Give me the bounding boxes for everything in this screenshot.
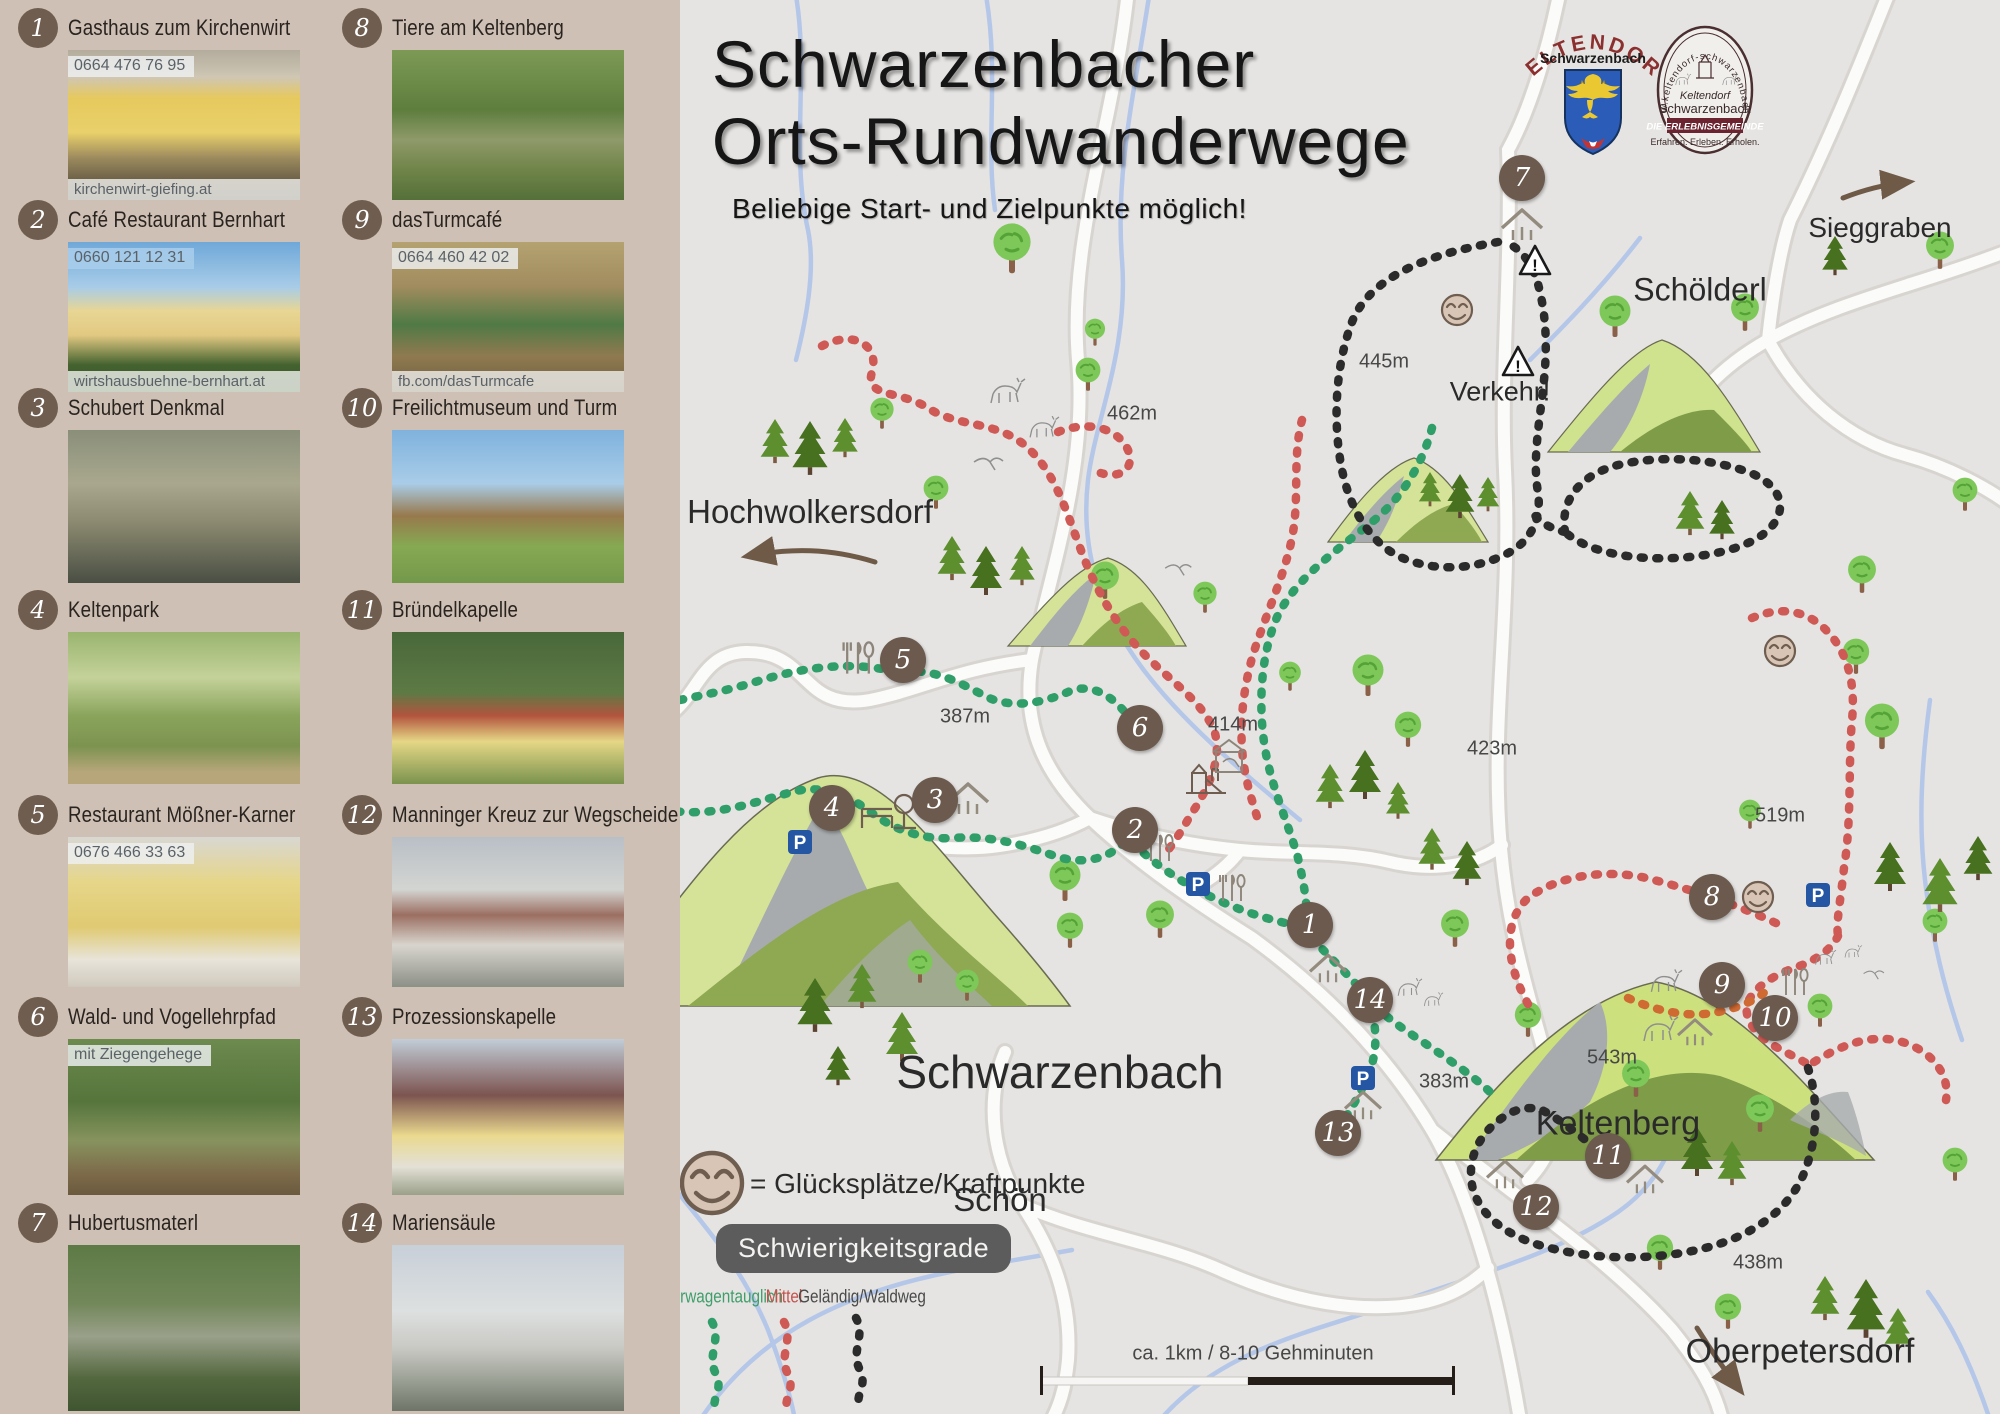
poi-number: 8	[342, 8, 382, 48]
poi-item-7: 7Hubertusmaterl	[18, 1203, 318, 1411]
map-title-line2: Orts-Rundwanderwege	[712, 103, 1410, 180]
smiley-icon	[1765, 636, 1795, 666]
poi-title: Gasthaus zum Kirchenwirt	[68, 15, 290, 41]
poi-number: 9	[342, 200, 382, 240]
poi-item-4: 4Keltenpark	[18, 590, 318, 784]
poi-photo-prozessionskapelle	[392, 1039, 624, 1195]
map-marker-6: 6	[1117, 705, 1163, 751]
poi-number: 3	[18, 388, 58, 428]
poi-number: 2	[18, 200, 58, 240]
poi-number: 1	[18, 8, 58, 48]
poi-phone: 0664 476 76 95	[68, 56, 194, 77]
map-marker-1: 1	[1287, 902, 1333, 948]
map-marker-11: 11	[1585, 1133, 1631, 1179]
poi-title: Freilichtmuseum und Turm	[392, 395, 617, 421]
map-marker-9: 9	[1699, 962, 1745, 1008]
poi-number: 7	[18, 1203, 58, 1243]
legend-difficulty-title: Schwierigkeitsgrade	[716, 1224, 1011, 1273]
poi-item-12: 12Manninger Kreuz zur Wegscheide	[342, 795, 672, 987]
poi-sidebar: 1Gasthaus zum Kirchenwirt 0664 476 76 95…	[0, 0, 680, 1414]
stamp-tagline: Erfahren. Erleben. Erholen.	[1650, 137, 1759, 147]
poi-item-9: 9dasTurmcafé 0664 460 42 02fb.com/dasTur…	[342, 200, 672, 392]
elevation-label: 445m	[1359, 351, 1409, 374]
poi-photo-gasthaus-kirchenwirt: 0664 476 76 95kirchenwirt-giefing.at	[68, 50, 300, 200]
elevation-label: 383m	[1419, 1071, 1469, 1094]
poi-title: Tiere am Keltenberg	[392, 15, 564, 41]
poi-title: Manninger Kreuz zur Wegscheide	[392, 802, 678, 828]
poi-title: dasTurmcafé	[392, 207, 502, 233]
poi-photo-tiere-keltenberg	[392, 50, 624, 200]
animal-sketch	[1845, 945, 1862, 958]
place-label-oberpetersdorf: Oberpetersdorf	[1686, 1333, 1915, 1372]
place-label-sieggraben: Sieggraben	[1808, 212, 1951, 244]
place-label-schoelderl: Schölderl	[1633, 272, 1766, 309]
poi-item-14: 14Mariensäule	[342, 1203, 672, 1411]
map-marker-14: 14	[1347, 977, 1393, 1023]
poi-photo-mariensaeule	[392, 1245, 624, 1411]
poi-title: Mariensäule	[392, 1210, 496, 1236]
smiley-icon	[1442, 295, 1472, 325]
bird-sketch	[974, 458, 1003, 470]
scale-label: ca. 1km / 8-10 Gehminuten	[1132, 1343, 1373, 1366]
poi-item-8: 8Tiere am Keltenberg	[342, 8, 672, 200]
map-marker-12: 12	[1513, 1184, 1559, 1230]
map-title-line1: Schwarzenbacher	[712, 26, 1410, 103]
bird-sketch	[1864, 971, 1884, 979]
elevation-label: 462m	[1107, 403, 1157, 426]
poi-item-10: 10Freilichtmuseum und Turm	[342, 388, 672, 583]
wanderkarte-poster: P !	[0, 0, 2000, 1414]
traffic-warning-label: Verkehr!	[1450, 377, 1551, 408]
playground-icon	[1186, 765, 1226, 793]
poi-item-1: 1Gasthaus zum Kirchenwirt 0664 476 76 95…	[18, 8, 318, 200]
poi-title: Prozessionskapelle	[392, 1004, 556, 1030]
poi-phone: 0664 460 42 02	[392, 248, 518, 269]
poi-title: Schubert Denkmal	[68, 395, 225, 421]
restaurant-icon	[1220, 875, 1245, 901]
poi-item-2: 2Café Restaurant Bernhart 0660 121 12 31…	[18, 200, 318, 392]
legend-smiley-label: = Glücksplätze/Kraftpunkte	[750, 1168, 1085, 1200]
poi-photo-manninger-kreuz	[392, 837, 624, 987]
poi-number: 10	[342, 388, 382, 428]
poi-number: 6	[18, 997, 58, 1037]
poi-phone: 0676 466 33 63	[68, 843, 194, 864]
poi-photo-schubert-denkmal	[68, 430, 300, 583]
poi-item-11: 11Bründelkapelle	[342, 590, 672, 784]
parking-icon	[1806, 883, 1830, 907]
poi-number: 14	[342, 1203, 382, 1243]
poi-caption: mit Ziegengehege	[68, 1045, 211, 1066]
poi-photo-bruendelkapelle	[392, 632, 624, 784]
poi-number: 4	[18, 590, 58, 630]
poi-number: 5	[18, 795, 58, 835]
poi-photo-hubertusmaterl	[68, 1245, 300, 1411]
animal-sketch	[1398, 978, 1422, 996]
parking-icon	[788, 830, 812, 854]
arrow-hochwolkersdorf	[748, 551, 875, 562]
map-marker-13: 13	[1315, 1110, 1361, 1156]
map-marker-8: 8	[1689, 874, 1735, 920]
elevation-label: 519m	[1755, 805, 1805, 828]
smiley-icon	[1743, 882, 1773, 912]
place-label-schwarzenbach: Schwarzenbach	[896, 1045, 1223, 1099]
animal-sketch	[1424, 992, 1443, 1006]
legend-level-hard: Geländig/Waldweg	[798, 1287, 926, 1308]
bird-sketch	[1165, 565, 1191, 576]
poi-title: Wald- und Vogellehrpfad	[68, 1004, 276, 1030]
map-marker-4: 4	[809, 785, 855, 831]
elevation-label: 387m	[940, 706, 990, 729]
poi-title: Keltenpark	[68, 597, 159, 623]
restaurant-icon	[1783, 969, 1808, 995]
poi-photo-vogellehrpfad: mit Ziegengehege	[68, 1039, 300, 1195]
parking-icon	[1186, 872, 1210, 896]
elevation-label: 438m	[1733, 1252, 1783, 1275]
map-subtitle: Beliebige Start- und Zielpunkte möglich!	[732, 193, 1410, 225]
map-marker-5: 5	[880, 637, 926, 683]
poi-photo-cafe-bernhart: 0660 121 12 31wirtshausbuehne-bernhart.a…	[68, 242, 300, 392]
poi-photo-freilichtmuseum	[392, 430, 624, 583]
poi-number: 12	[342, 795, 382, 835]
poi-url: kirchenwirt-giefing.at	[68, 179, 300, 200]
poi-phone: 0660 121 12 31	[68, 248, 194, 269]
legend-red-footprints	[784, 1322, 791, 1410]
poi-photo-turmcafe: 0664 460 42 02fb.com/dasTurmcafe	[392, 242, 624, 392]
poi-number: 11	[342, 590, 382, 630]
poi-title: Restaurant Mößner-Karner	[68, 802, 296, 828]
parking-icon	[1351, 1066, 1375, 1090]
map-marker-7: 7	[1499, 155, 1545, 201]
poi-item-5: 5Restaurant Mößner-Karner 0676 466 33 63	[18, 795, 318, 987]
place-label-hochwolkersdorf: Hochwolkersdorf	[687, 493, 933, 531]
scale-bar	[1040, 1366, 1455, 1395]
restaurant-icon	[844, 642, 874, 673]
coat-logo-sub: Schwarzenbach	[1540, 50, 1646, 66]
poi-title: Hubertusmaterl	[68, 1210, 198, 1236]
poi-photo-keltenpark	[68, 632, 300, 784]
stamp-line2: Schwarzenbach	[1659, 101, 1752, 116]
poi-item-3: 3Schubert Denkmal	[18, 388, 318, 583]
poi-item-13: 13Prozessionskapelle	[342, 997, 672, 1195]
legend-black-footprints	[856, 1318, 863, 1406]
legend-smiley-icon	[682, 1153, 742, 1213]
elevation-label: 414m	[1208, 714, 1258, 737]
elevation-label: 423m	[1467, 738, 1517, 761]
map-marker-10: 10	[1752, 995, 1798, 1041]
map-marker-2: 2	[1112, 807, 1158, 853]
poi-title: Café Restaurant Bernhart	[68, 207, 285, 233]
elevation-label: 543m	[1587, 1047, 1637, 1070]
poi-title: Bründelkapelle	[392, 597, 518, 623]
stamp-banner: DIE ERLEBNISGEMEINDE	[1646, 122, 1764, 133]
map-marker-3: 3	[912, 777, 958, 823]
legend-level-medium: Mittel	[766, 1287, 803, 1308]
poi-photo-moessner-karner: 0676 466 33 63	[68, 837, 300, 987]
legend-green-footprints	[712, 1322, 719, 1410]
animal-sketch	[991, 378, 1025, 403]
poi-item-6: 6Wald- und Vogellehrpfad mit Ziegengeheg…	[18, 997, 318, 1195]
map-title: Schwarzenbacher Orts-Rundwanderwege Beli…	[712, 26, 1410, 226]
poi-number: 13	[342, 997, 382, 1037]
arrow-sieggraben	[1843, 182, 1908, 198]
